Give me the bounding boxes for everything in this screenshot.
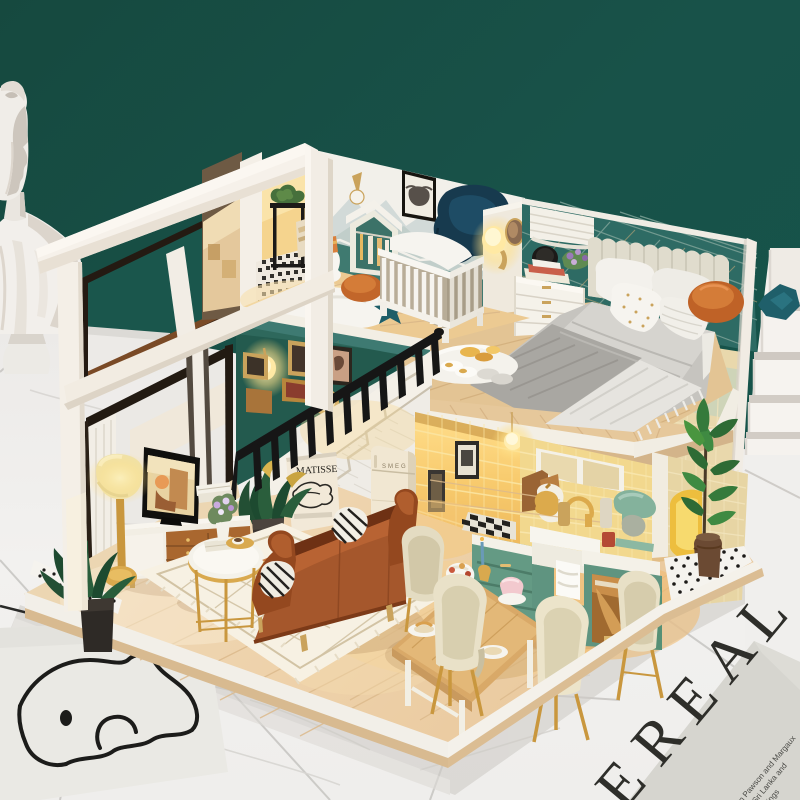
svg-text:SMEG: SMEG xyxy=(382,464,408,470)
